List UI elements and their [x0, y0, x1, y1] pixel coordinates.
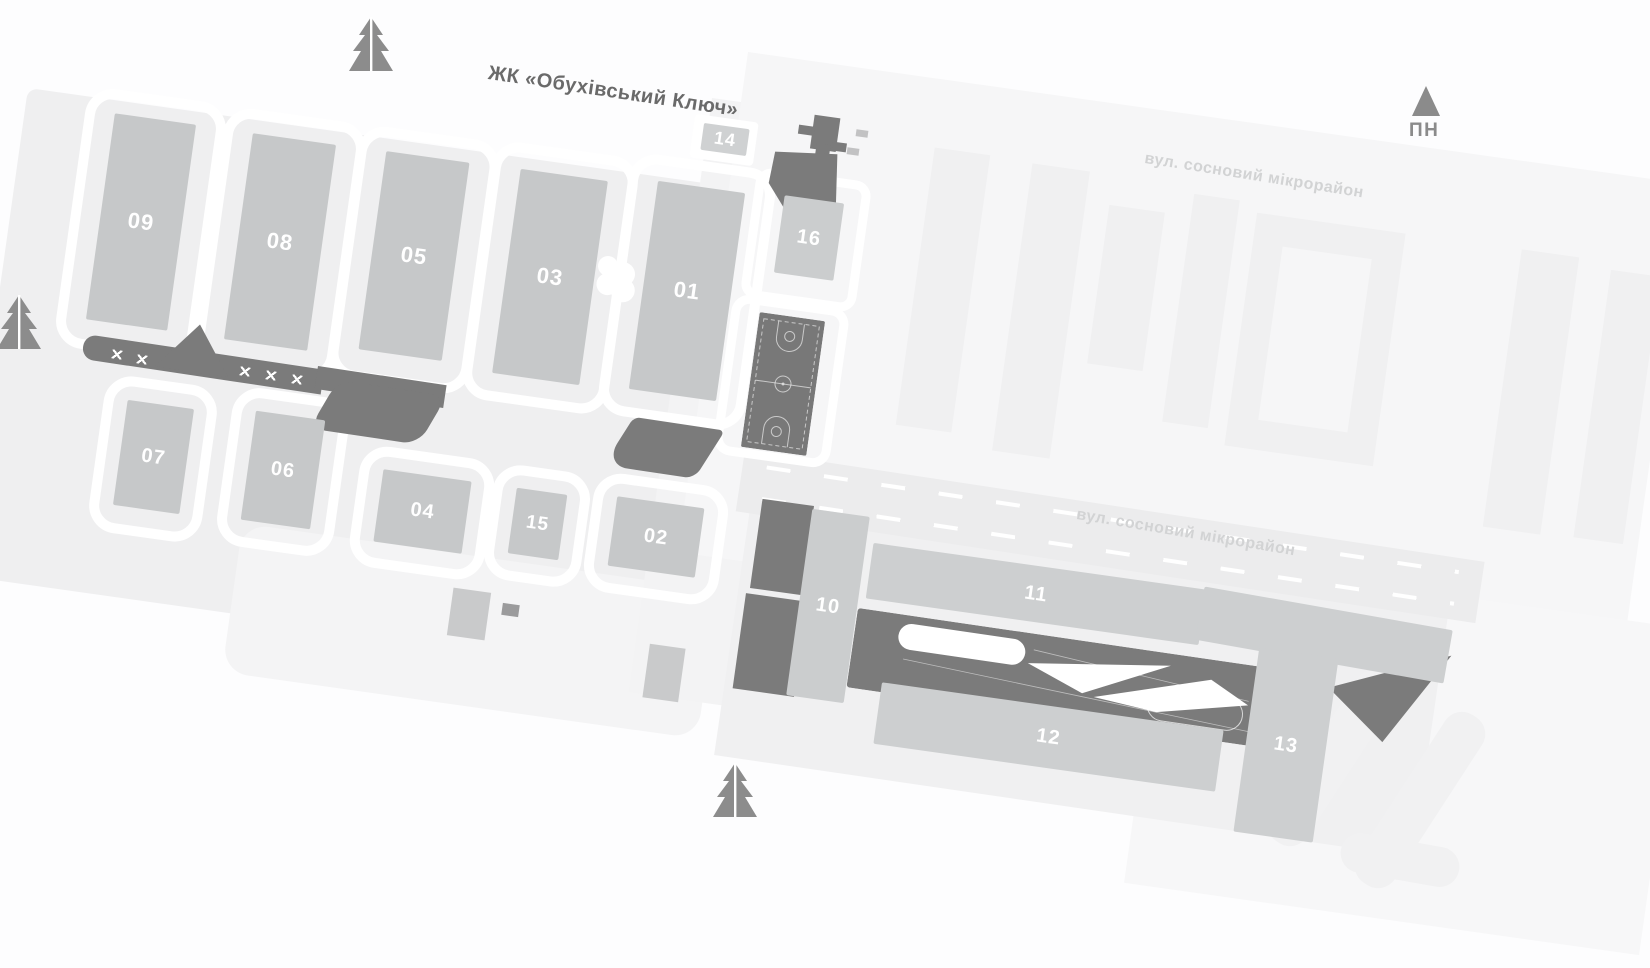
north-label: ПН: [1409, 120, 1439, 142]
building-04[interactable]: 04: [373, 469, 471, 554]
tree-mark: [265, 370, 276, 380]
tree-mark: [111, 349, 122, 359]
tree-mark: [291, 374, 302, 384]
master-plan-map: 09 08 05 03 01 07 06 04 15 02 16 10 11 1…: [0, 0, 1650, 968]
tree-mark: [239, 366, 250, 376]
fir-tree-icon: [712, 762, 758, 819]
tree-mark: [136, 354, 147, 364]
complex-title: ЖК «Обухівський Ключ»: [487, 62, 740, 122]
fir-tree-icon: [348, 16, 394, 73]
road-mark: [856, 129, 869, 138]
service-block: [642, 644, 685, 702]
service-block: [447, 588, 491, 641]
service-block: [501, 603, 520, 617]
fir-tree-icon: [0, 294, 42, 351]
building-15[interactable]: 15: [508, 488, 568, 560]
building-02[interactable]: 02: [608, 496, 705, 578]
building-16[interactable]: 16: [774, 195, 844, 281]
north-arrow-icon: [1412, 86, 1440, 116]
